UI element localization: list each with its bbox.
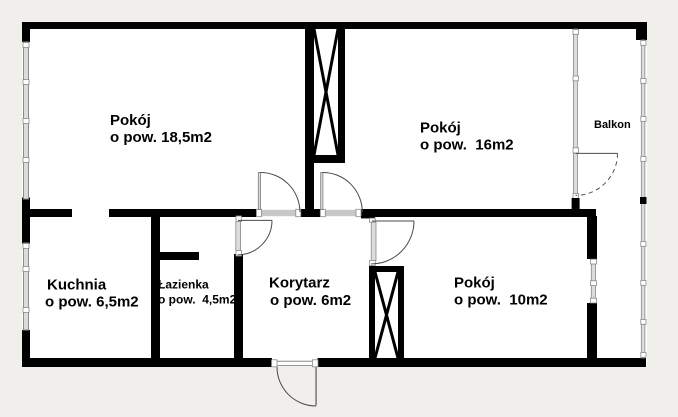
svg-text:o pow. 16m2: o pow. 16m2: [420, 137, 514, 154]
svg-text:Kuchnia: Kuchnia: [47, 277, 107, 294]
svg-text:Pokój: Pokój: [420, 120, 461, 137]
svg-text:o pow. 6,5m2: o pow. 6,5m2: [45, 294, 139, 311]
svg-text:o pow. 4,5m2: o pow. 4,5m2: [158, 293, 237, 307]
svg-text:Balkon: Balkon: [594, 119, 631, 131]
svg-text:Pokój: Pokój: [454, 274, 495, 291]
svg-text:Łazienka: Łazienka: [158, 278, 209, 292]
svg-text:o pow. 18,5m2: o pow. 18,5m2: [110, 129, 212, 146]
svg-text:o pow. 6m2: o pow. 6m2: [270, 292, 351, 309]
svg-text:o pow. 10m2: o pow. 10m2: [454, 292, 548, 309]
svg-text:Korytarz: Korytarz: [269, 275, 330, 292]
svg-text:Pokój: Pokój: [110, 112, 151, 129]
